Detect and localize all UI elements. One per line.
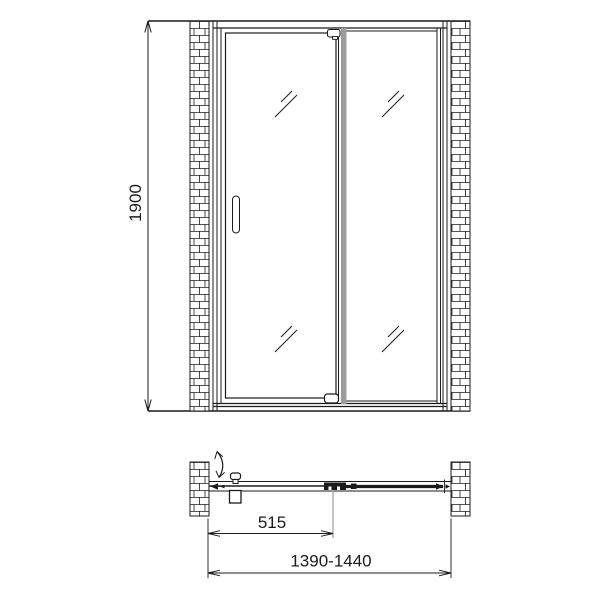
bottom-pivot-hinge-icon bbox=[325, 394, 339, 403]
glass-icon bbox=[275, 326, 297, 352]
right-wall bbox=[451, 21, 470, 411]
front-view: 1900 bbox=[126, 21, 470, 411]
height-dimension: 1900 bbox=[126, 21, 151, 411]
left-wall bbox=[190, 21, 209, 411]
overall-width-dimension-label: 1390-1440 bbox=[290, 552, 371, 571]
right-wall-channel bbox=[443, 21, 447, 411]
glass-icon bbox=[275, 91, 297, 117]
plan-left-wall bbox=[190, 462, 209, 516]
plan-view: 515 1390-1440 bbox=[190, 452, 470, 579]
door-offset-dimension: 515 bbox=[208, 513, 333, 536]
frame-right-stile bbox=[437, 28, 441, 404]
pivot-door-panel bbox=[226, 33, 337, 398]
door-swing-arrow-icon bbox=[215, 452, 225, 478]
glass-icon bbox=[382, 91, 404, 117]
overall-width-dimension: 1390-1440 bbox=[208, 552, 451, 576]
plan-left-wall-bracket-icon bbox=[211, 483, 225, 489]
plan-door-handle-icon bbox=[230, 473, 242, 503]
frame-bottom-rail bbox=[213, 404, 447, 407]
door-handle bbox=[233, 196, 240, 233]
pivot-post-profile bbox=[341, 28, 347, 404]
plan-right-wall bbox=[451, 462, 470, 516]
glass-icon bbox=[382, 326, 404, 352]
left-wall-channel bbox=[213, 21, 217, 411]
plan-pivot-bracket-icon bbox=[324, 483, 357, 491]
height-dimension-label: 1900 bbox=[126, 184, 145, 222]
shower-door-technical-drawing: 1900 bbox=[0, 0, 600, 600]
door-offset-dimension-label: 515 bbox=[258, 513, 286, 532]
fixed-panel bbox=[347, 31, 438, 401]
